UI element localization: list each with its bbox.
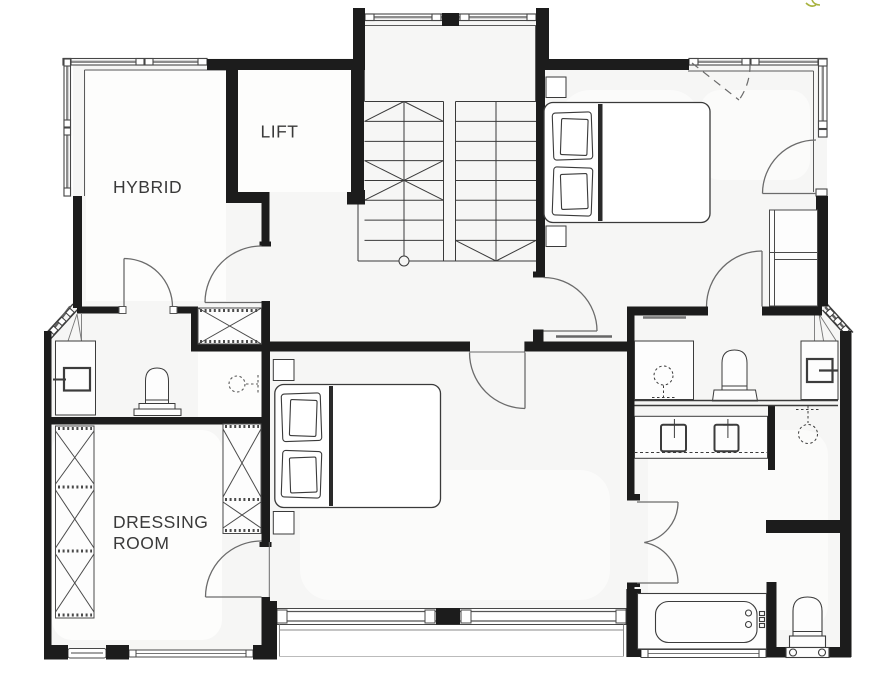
svg-text:DRESSING: DRESSING (113, 512, 208, 532)
svg-text:ROOM: ROOM (113, 533, 169, 553)
svg-text:LIFT: LIFT (261, 122, 299, 142)
svg-text:HYBRID: HYBRID (113, 177, 182, 197)
